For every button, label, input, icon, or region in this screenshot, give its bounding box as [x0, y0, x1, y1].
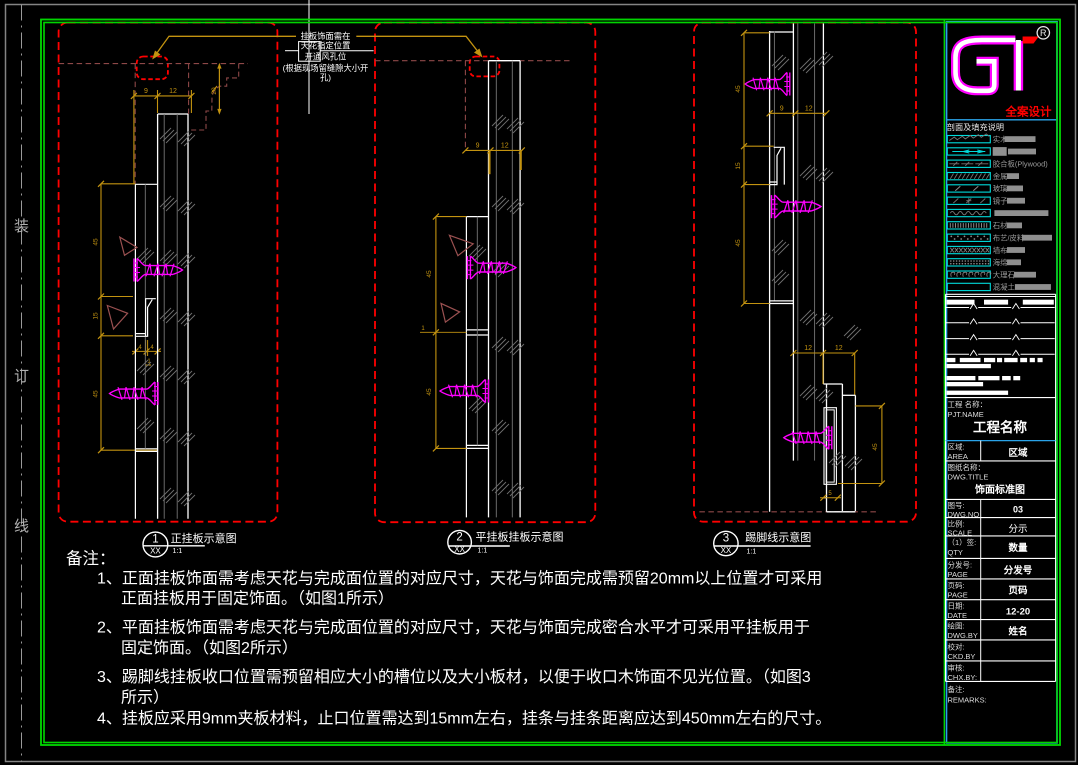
svg-text:校对:: 校对: — [948, 642, 965, 652]
svg-text:DATE: DATE — [948, 611, 967, 620]
svg-text:AREA: AREA — [948, 452, 968, 461]
svg-text:审核:: 审核: — [948, 663, 965, 673]
svg-text:日期:: 日期: — [948, 602, 965, 611]
svg-text:开通风孔位: 开通风孔位 — [305, 52, 347, 62]
svg-text:CKD.BY: CKD.BY — [948, 652, 976, 661]
svg-text:海绵: 海绵 — [993, 258, 1008, 267]
svg-text:DWG.TITLE: DWG.TITLE — [948, 473, 989, 482]
svg-text:金属: 金属 — [993, 172, 1008, 181]
svg-text:剖面及填充说明: 剖面及填充说明 — [947, 122, 1004, 132]
svg-text:区域: 区域 — [1008, 447, 1028, 459]
svg-text:1:1: 1:1 — [747, 549, 757, 556]
svg-text:XX: XX — [454, 545, 465, 554]
svg-text:12: 12 — [835, 345, 843, 352]
svg-text:12-20: 12-20 — [1006, 607, 1030, 618]
svg-text:PAGE: PAGE — [948, 591, 968, 600]
svg-text:图纸名称：: 图纸名称： — [948, 462, 986, 472]
svg-text:图号:: 图号: — [948, 501, 965, 510]
svg-text:墙布: 墙布 — [993, 246, 1008, 255]
svg-text:45: 45 — [735, 239, 742, 247]
svg-text:（1）签:: （1）签: — [948, 537, 977, 547]
svg-text:XX: XX — [150, 547, 161, 556]
svg-text:装: 装 — [14, 218, 29, 235]
svg-text:布艺/皮料: 布艺/皮料 — [993, 234, 1025, 243]
svg-text:饰面标准图: 饰面标准图 — [975, 483, 1025, 496]
svg-text:2: 2 — [456, 532, 462, 544]
svg-text:分示: 分示 — [1008, 524, 1027, 535]
svg-text:挂板饰面需在: 挂板饰面需在 — [301, 31, 351, 41]
svg-text:天花指定位置: 天花指定位置 — [301, 41, 351, 51]
svg-text:工程名称: 工程名称 — [973, 419, 1027, 435]
svg-text:QTY: QTY — [948, 548, 963, 557]
svg-text:9: 9 — [780, 106, 784, 113]
svg-text:15: 15 — [93, 312, 100, 320]
svg-text:12: 12 — [805, 106, 813, 113]
svg-text:绘图:: 绘图: — [948, 621, 965, 631]
svg-text:备注:: 备注: — [948, 684, 965, 694]
svg-text:3: 3 — [723, 533, 729, 545]
svg-text:正面挂板用于固定饰面。（如图1所示）: 正面挂板用于固定饰面。（如图1所示） — [121, 590, 394, 608]
svg-text:镜子: 镜子 — [993, 197, 1008, 206]
svg-text:45: 45 — [735, 85, 742, 93]
svg-text:REMARKS:: REMARKS: — [948, 696, 987, 705]
svg-text:15: 15 — [735, 162, 742, 170]
svg-text:大理石: 大理石 — [993, 270, 1015, 279]
svg-text:石材: 石材 — [993, 221, 1008, 230]
svg-text:12: 12 — [169, 88, 177, 95]
svg-text:PAGE: PAGE — [948, 570, 968, 579]
svg-text:工程 名称：: 工程 名称： — [948, 399, 988, 409]
svg-text:混凝土: 混凝土 — [993, 283, 1015, 292]
svg-text:45: 45 — [93, 238, 100, 246]
svg-text:1:1: 1:1 — [173, 548, 183, 555]
svg-text:R: R — [1040, 28, 1047, 38]
svg-text:分发号:: 分发号: — [948, 560, 973, 570]
svg-text:(根据现场留缝隙大小开: (根据现场留缝隙大小开 — [283, 63, 369, 73]
svg-text:全案设计: 全案设计 — [1005, 105, 1052, 119]
svg-text:9: 9 — [144, 88, 148, 95]
svg-text:12: 12 — [804, 345, 812, 352]
svg-text:备注：: 备注： — [66, 549, 116, 568]
svg-text:3、踢脚线挂板收口位置需预留相应大小的槽位以及大小板材，以便: 3、踢脚线挂板收口位置需预留相应大小的槽位以及大小板材，以便于收口木饰面不见光位… — [97, 667, 811, 686]
svg-text:平挂板挂板示意图: 平挂板挂板示意图 — [476, 530, 564, 544]
svg-text:45: 45 — [93, 390, 100, 398]
svg-text:CHX.BY:: CHX.BY: — [948, 673, 978, 682]
svg-text:12: 12 — [501, 143, 509, 150]
svg-text:订: 订 — [14, 368, 29, 385]
svg-text:线: 线 — [14, 518, 29, 535]
svg-text:1、正面挂板饰面需考虑天花与完成面位置的对应尺寸，天花与饰面: 1、正面挂板饰面需考虑天花与完成面位置的对应尺寸，天花与饰面完成需预留20mm以… — [97, 569, 822, 588]
svg-text:1:1: 1:1 — [478, 548, 488, 555]
svg-text:20: 20 — [211, 87, 218, 95]
svg-text:分发号: 分发号 — [1004, 565, 1033, 577]
svg-text:所示）: 所示） — [121, 689, 169, 707]
svg-text:DWG.BY: DWG.BY — [948, 631, 978, 640]
svg-text:孔): 孔) — [320, 73, 331, 83]
svg-text:45: 45 — [426, 270, 433, 278]
svg-text:区域:: 区域: — [948, 442, 965, 452]
svg-text:页码:: 页码: — [948, 581, 965, 590]
svg-text:数量: 数量 — [1007, 542, 1028, 554]
svg-text:9: 9 — [476, 143, 480, 150]
svg-text:1: 1 — [152, 534, 158, 546]
svg-text:玻璃: 玻璃 — [993, 184, 1008, 193]
svg-text:2、平面挂板饰面需考虑天花与完成面位置的对应尺寸，天花与饰面: 2、平面挂板饰面需考虑天花与完成面位置的对应尺寸，天花与饰面完成密合水平才可采用… — [97, 617, 810, 636]
svg-text:踢脚线示意图: 踢脚线示意图 — [745, 530, 811, 544]
svg-text:PJT.NAME: PJT.NAME — [948, 410, 984, 419]
svg-text:胶合板(Plywood): 胶合板(Plywood) — [993, 160, 1048, 169]
svg-text:XX: XX — [721, 546, 732, 555]
svg-text:45: 45 — [872, 443, 879, 451]
svg-text:比例:: 比例: — [948, 519, 965, 529]
svg-text:固定饰面。（如图2所示）: 固定饰面。（如图2所示） — [121, 639, 298, 657]
svg-text:姓名: 姓名 — [1007, 626, 1027, 638]
svg-text:03: 03 — [1013, 505, 1023, 515]
svg-text:45: 45 — [426, 388, 433, 396]
svg-text:正挂板示意图: 正挂板示意图 — [171, 531, 237, 545]
svg-text:4、挂板应采用9mm夹板材料，止口位置需达到15mm左右，挂: 4、挂板应采用9mm夹板材料，止口位置需达到15mm左右，挂条与挂条距离应达到4… — [97, 708, 831, 727]
svg-text:页码: 页码 — [1008, 586, 1028, 597]
